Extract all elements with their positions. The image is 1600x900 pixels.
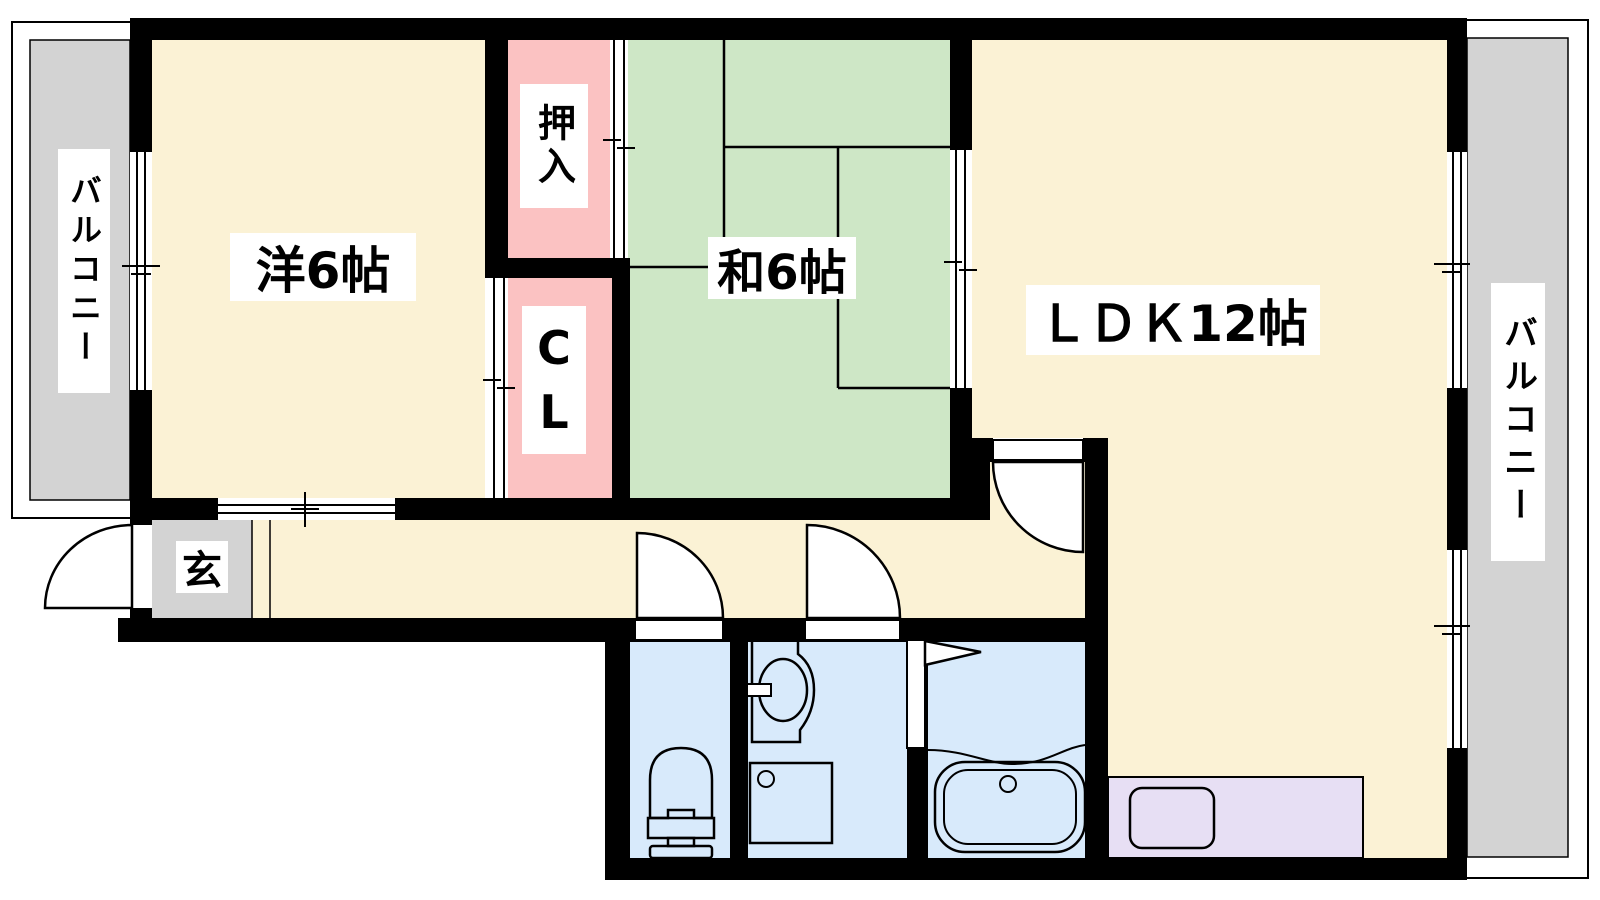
door-opening [635,620,723,640]
wall-wetarea-left [605,640,630,858]
wall-hall-bottom [118,618,1108,642]
floor-plan: 洋6帖 和6帖 ＬＤＫ12帖 押入 C L 玄 バルコニー バルコニー [0,0,1600,900]
door-opening [130,525,152,608]
label-oshiire: 押入 [520,84,588,208]
wall-ldk-wetarea [1085,462,1108,858]
door-band [907,640,925,748]
wall-top [130,18,1467,40]
wall-left [130,40,152,152]
entry-door [45,525,152,608]
wall-right [1447,40,1467,152]
wall-cl-tatami [612,278,630,498]
door-opening [805,620,900,640]
wall-right [1447,388,1467,550]
floor-plan-drawing [0,0,1600,900]
wall-hall-top [395,498,990,520]
wall-west-oshiire [485,40,508,258]
wall-bottom [605,858,1467,880]
wall-toilet-washroom [730,640,748,858]
door-opening [993,440,1083,460]
wall-ldk-door-jamb [968,438,993,462]
label-balcony-right: バルコニー [1491,283,1545,561]
wall-hall-top [152,498,218,520]
door-swing [45,525,132,608]
label-genkan: 玄 [176,541,228,593]
label-ldk: ＬＤＫ12帖 [1026,285,1320,355]
vanity-faucet [747,684,771,696]
wall-tatami-ldk [950,40,972,150]
wall-left [130,390,152,525]
bathroom-floor [928,640,1085,858]
wall-nook [968,462,990,520]
window-band [1447,550,1467,748]
washroom-floor [748,640,907,858]
label-closet: C L [522,306,586,454]
wall-ldk-door-jamb [1083,438,1108,462]
window-band [130,152,152,390]
label-balcony-left: バルコニー [58,149,110,393]
label-japanese-room: 和6帖 [708,237,856,299]
wall-oshiire-cl [485,258,630,278]
wall-right [1447,748,1467,858]
window-band [1447,152,1467,388]
label-west-room: 洋6帖 [230,233,416,301]
